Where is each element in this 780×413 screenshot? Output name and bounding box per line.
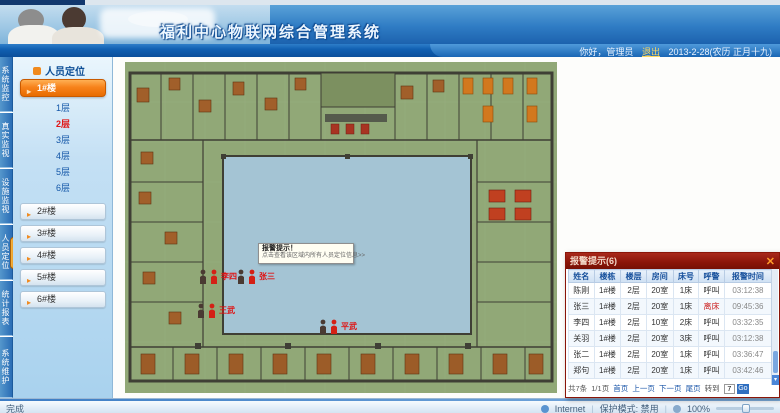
protected-mode-text: 保护模式: 禁用	[600, 402, 659, 413]
chevron-right-icon: ▸	[27, 84, 31, 100]
nav-tab-personnel-location[interactable]: 人员定位	[0, 225, 13, 280]
col-building: 楼栋	[594, 270, 621, 283]
person-pair-icon	[199, 269, 221, 284]
building-button-2[interactable]: ▸2#楼	[20, 203, 106, 220]
alarm-popup: 报警提示(6) ✕ 姓名 楼栋 楼层 房间 床号 呼警 报警时间	[565, 252, 780, 398]
panel-title: 人员定位	[33, 63, 85, 78]
person-icon	[33, 67, 41, 75]
pager-next[interactable]: 下一页	[659, 384, 682, 393]
scrollbar-thumb[interactable]	[773, 351, 778, 373]
status-left-text: 完成	[6, 402, 24, 413]
building-button-6[interactable]: ▸6#楼	[20, 291, 106, 308]
chevron-right-icon: ▸	[27, 229, 31, 244]
col-alert: 呼警	[699, 270, 725, 283]
chevron-right-icon: ▸	[27, 273, 31, 288]
person-pair-icon	[197, 303, 219, 318]
sub-header-bar: 你好，管理员 退出 2013-2-28(农历 正月十九)	[0, 44, 780, 57]
table-row[interactable]: 陈刚1#楼2层20室1床呼叫03:12:38	[569, 283, 772, 299]
welcome-text: 你好，管理员	[579, 47, 633, 57]
alarm-popup-titlebar[interactable]: 报警提示(6) ✕	[566, 253, 779, 269]
zoom-slider[interactable]	[716, 407, 774, 410]
logout-link[interactable]: 退出	[642, 47, 660, 57]
marker-name: 李四	[221, 271, 237, 282]
chevron-right-icon: ▸	[27, 251, 31, 266]
globe-icon	[541, 405, 549, 413]
popup-scrollbar[interactable]: ▾	[771, 269, 778, 385]
pager-total: 共7条	[568, 384, 587, 393]
marker-name: 平武	[341, 321, 357, 332]
magnifier-icon	[673, 405, 681, 413]
map-area: 报警提示！ 点击查看该区域内所有人员定位信息>> 李四 张三 王武	[113, 57, 780, 398]
table-row[interactable]: 郑句1#楼2层20室1床呼叫03:42:46	[569, 363, 772, 379]
header-banner: 福利中心物联网综合管理系统	[0, 5, 780, 44]
floor-item-5[interactable]: 5层	[20, 165, 106, 180]
building-button-5[interactable]: ▸5#楼	[20, 269, 106, 286]
marker-name: 张三	[259, 271, 275, 282]
app-window: 福利中心物联网综合管理系统 你好，管理员 退出 2013-2-28(农历 正月十…	[0, 0, 780, 413]
table-row[interactable]: 关羽1#楼2层20室3床呼叫03:12:38	[569, 331, 772, 347]
floor-plan[interactable]	[125, 62, 557, 393]
zoom-slider-knob[interactable]	[742, 404, 750, 413]
map-tooltip[interactable]: 报警提示！ 点击查看该区域内所有人员定位信息>>	[258, 243, 354, 264]
alarm-popup-title: 报警提示(6)	[570, 256, 617, 266]
floor-plan-svg	[125, 62, 557, 393]
pager: 共7条 1/1页 首页 上一页 下一页 尾页 转到 Go	[568, 383, 778, 396]
col-name: 姓名	[569, 270, 595, 283]
person-marker-4[interactable]: 平武	[319, 319, 365, 335]
tooltip-text: 点击查看该区域内所有人员定位信息>>	[262, 253, 350, 260]
go-button[interactable]: Go	[737, 384, 749, 394]
table-row[interactable]: 张三1#楼2层20室1床离床09:45:36	[569, 299, 772, 315]
statusbar-accent-line	[0, 399, 780, 401]
nav-tab-system-monitor[interactable]: 系统监控	[0, 57, 13, 112]
pager-first[interactable]: 首页	[613, 384, 628, 393]
close-icon[interactable]: ✕	[766, 254, 775, 270]
separator: |	[591, 404, 593, 413]
floor-item-6[interactable]: 6层	[20, 181, 106, 196]
col-room: 房间	[646, 270, 673, 283]
marker-name: 王武	[219, 305, 235, 316]
building-button-1[interactable]: ▸ 1#楼	[20, 79, 106, 97]
building-button-3[interactable]: ▸3#楼	[20, 225, 106, 242]
col-bed: 床号	[673, 270, 699, 283]
col-floor: 楼层	[621, 270, 647, 283]
person-photo-body2	[52, 27, 104, 44]
nav-tab-reports[interactable]: 统计报表	[0, 281, 13, 336]
person-pair-icon	[237, 269, 259, 284]
alarm-table-header-row: 姓名 楼栋 楼层 房间 床号 呼警 报警时间	[569, 270, 772, 283]
page-number-input[interactable]	[724, 384, 735, 394]
building-button-4[interactable]: ▸4#楼	[20, 247, 106, 264]
zoom-level-text[interactable]: 100%	[687, 404, 710, 413]
floor-item-3[interactable]: 3层	[20, 133, 106, 148]
app-title: 福利中心物联网综合管理系统	[160, 21, 490, 42]
col-time: 报警时间	[724, 270, 771, 283]
pager-prev[interactable]: 上一页	[632, 384, 655, 393]
pager-page: 1/1页	[591, 384, 609, 393]
table-row[interactable]: 张二1#楼2层20室1床呼叫03:36:47	[569, 347, 772, 363]
person-marker-2[interactable]: 张三	[237, 269, 283, 285]
date-text: 2013-2-28(农历 正月十九)	[668, 47, 772, 57]
nav-tab-facility-monitor[interactable]: 设施监视	[0, 169, 13, 224]
chevron-right-icon: ▸	[27, 207, 31, 222]
table-row[interactable]: 李四1#楼2层10室2床呼叫03:32:35	[569, 315, 772, 331]
separator: |	[665, 404, 667, 413]
nav-tab-maintenance[interactable]: 系统维护	[0, 337, 13, 398]
floor-item-1[interactable]: 1层	[20, 101, 106, 116]
chevron-right-icon: ▸	[27, 295, 31, 310]
person-marker-3[interactable]: 王武	[197, 303, 243, 319]
person-pair-icon	[319, 319, 341, 334]
status-bar: 完成 Internet | 保护模式: 禁用 | 100%	[0, 398, 780, 413]
pager-last[interactable]: 尾页	[686, 384, 701, 393]
pager-goto-label: 转到	[705, 384, 720, 393]
status-right-cluster: Internet | 保护模式: 禁用 | 100%	[541, 402, 774, 413]
nav-tab-live-monitor[interactable]: 真实监视	[0, 113, 13, 168]
tooltip-title: 报警提示！	[262, 245, 350, 253]
floor-item-2-active[interactable]: 2层	[20, 117, 106, 132]
floor-item-4[interactable]: 4层	[20, 149, 106, 164]
alarm-table: 姓名 楼栋 楼层 房间 床号 呼警 报警时间 陈刚1#楼2层20室1床呼叫03:…	[568, 269, 772, 379]
sidebar: 人员定位 ▸ 1#楼 1层 2层 3层 4层 5层 6层 ▸2#楼 ▸3#楼 ▸…	[13, 57, 113, 398]
zone-text: Internet	[555, 404, 586, 413]
